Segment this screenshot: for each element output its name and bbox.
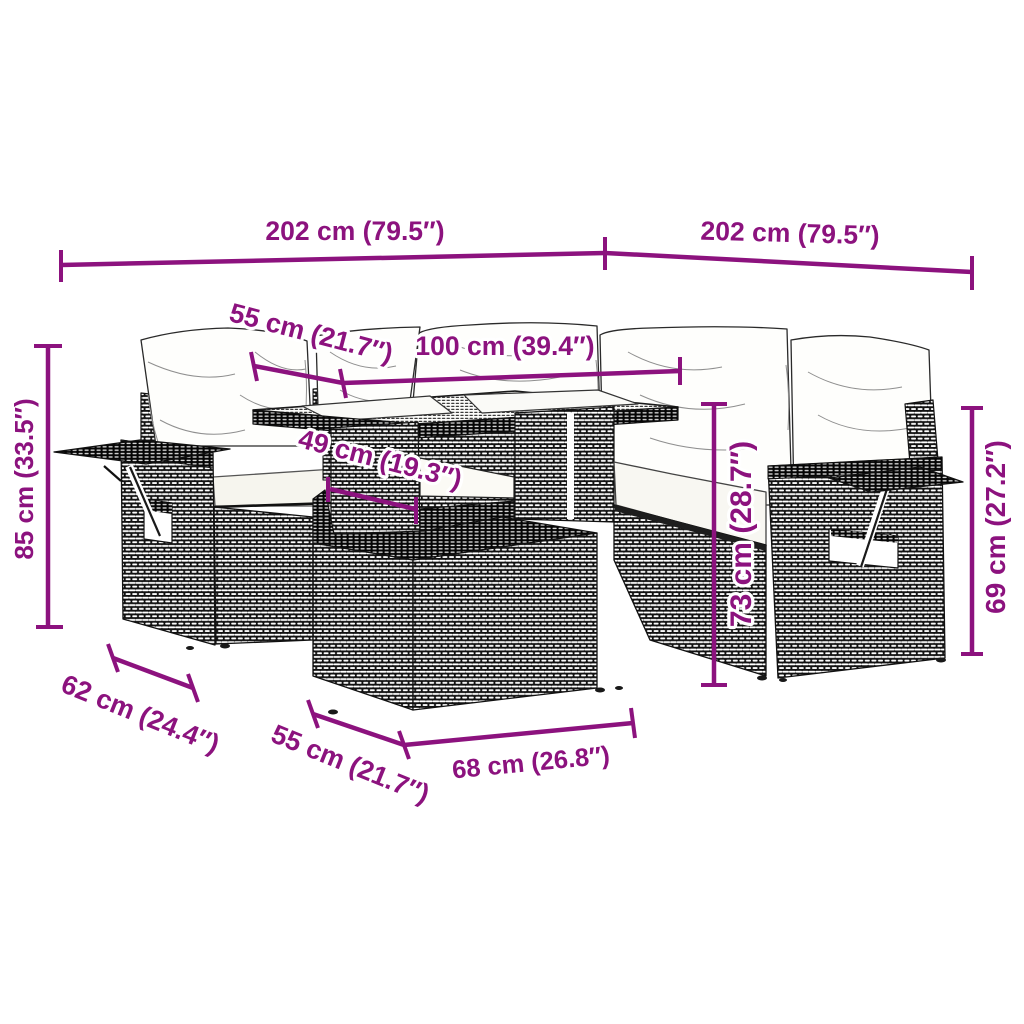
svg-text:202 cm (79.5″): 202 cm (79.5″) [265,216,444,246]
svg-text:55 cm (21.7″): 55 cm (21.7″) [267,719,434,810]
svg-text:85 cm (33.5″): 85 cm (33.5″) [9,398,39,559]
svg-text:100 cm (39.4″): 100 cm (39.4″) [415,331,594,361]
svg-text:73 cm (28.7″): 73 cm (28.7″) [725,441,758,627]
svg-text:69 cm (27.2″): 69 cm (27.2″) [980,440,1011,614]
svg-text:68 cm (26.8″): 68 cm (26.8″) [451,741,611,784]
svg-text:202 cm (79.5″): 202 cm (79.5″) [700,216,880,251]
svg-text:62 cm (24.4″): 62 cm (24.4″) [57,669,224,760]
